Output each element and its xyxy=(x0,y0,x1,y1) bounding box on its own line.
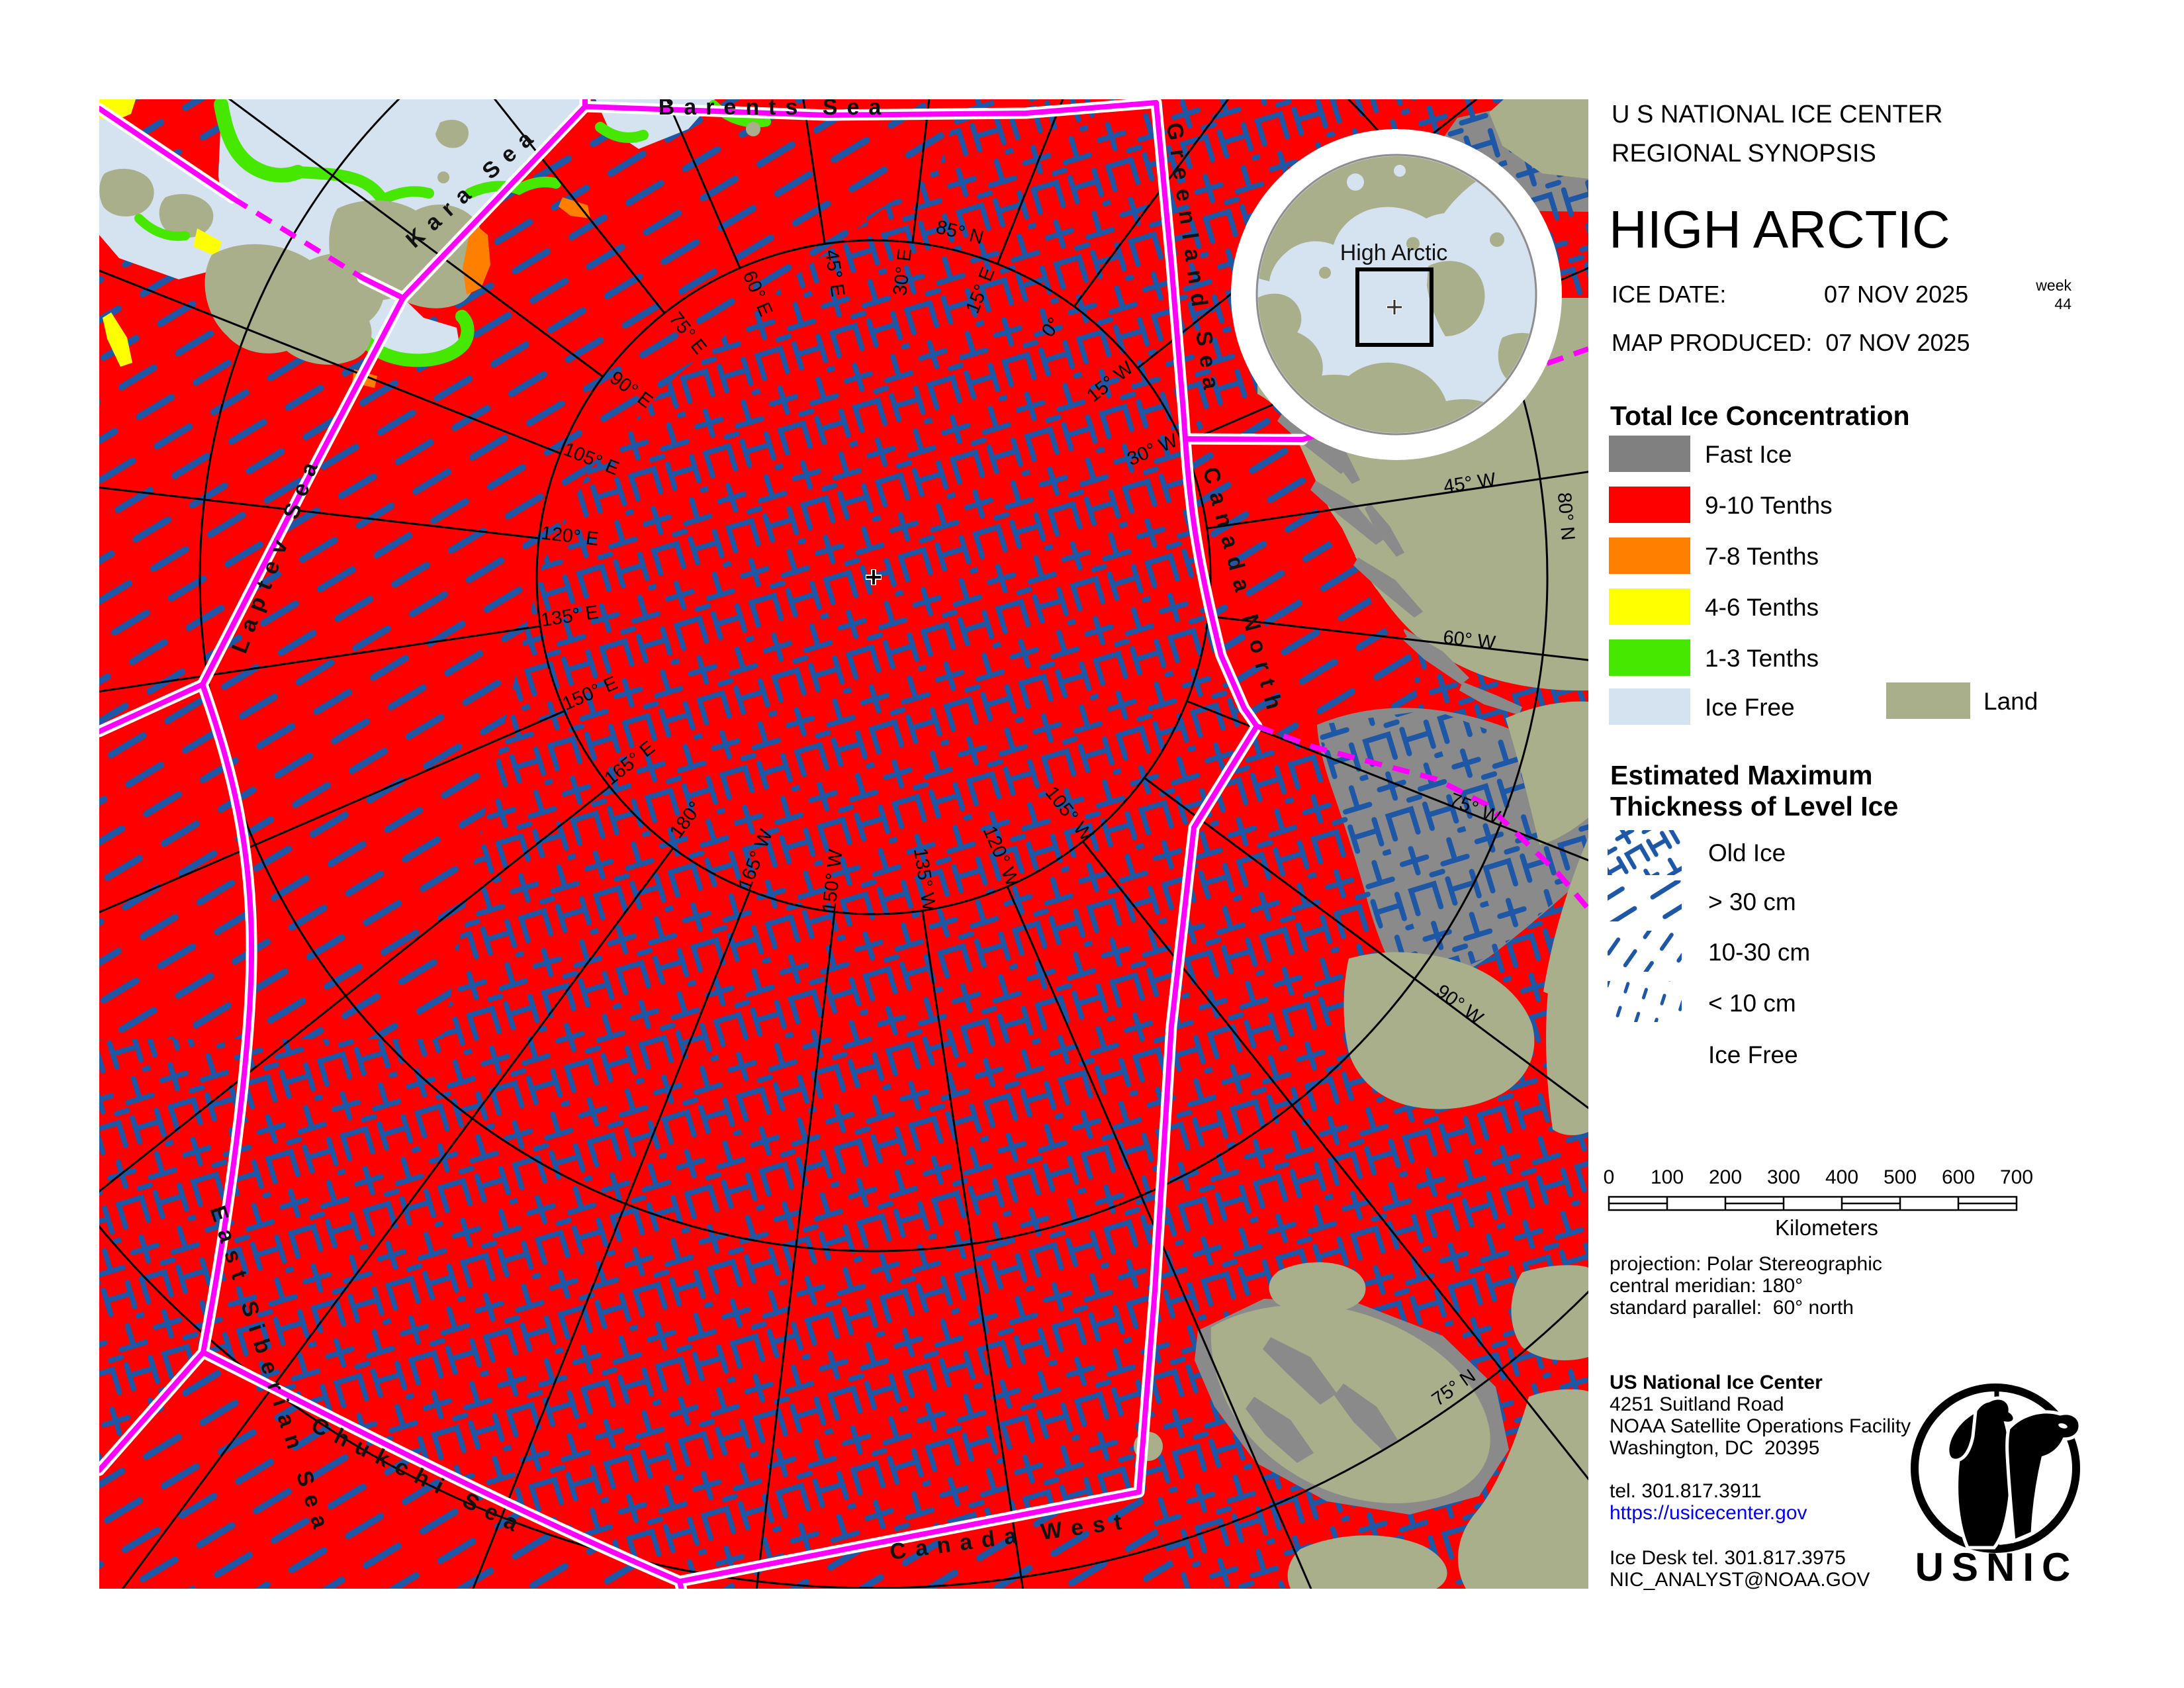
svg-text:700: 700 xyxy=(2000,1166,2033,1188)
svg-text:USNIC: USNIC xyxy=(1915,1545,2079,1589)
svg-text:Barents Sea: Barents Sea xyxy=(659,99,891,120)
svg-text:300: 300 xyxy=(1767,1166,1800,1188)
svg-text:600: 600 xyxy=(1942,1166,1975,1188)
svg-text:400: 400 xyxy=(1825,1166,1858,1188)
svg-text:Kilometers: Kilometers xyxy=(1775,1215,1878,1240)
svg-text:High Arctic: High Arctic xyxy=(1340,240,1448,265)
svg-text:200: 200 xyxy=(1709,1166,1742,1188)
svg-text:0: 0 xyxy=(1604,1166,1615,1188)
svg-text:80° N: 80° N xyxy=(1553,492,1578,541)
svg-text:100: 100 xyxy=(1651,1166,1684,1188)
svg-text:500: 500 xyxy=(1884,1166,1917,1188)
